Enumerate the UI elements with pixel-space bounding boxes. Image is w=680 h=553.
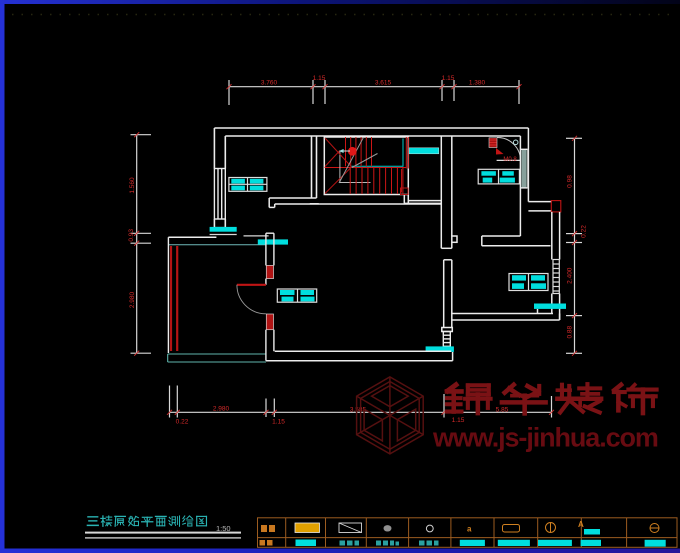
svg-text:3.615: 3.615 [375,80,392,87]
svg-text:0.22: 0.22 [176,419,189,426]
svg-text:1.15: 1.15 [313,75,326,82]
svg-text:www.js-jinhua.com: www.js-jinhua.com [432,423,658,453]
svg-text:0.22: 0.22 [581,225,588,238]
svg-text:1.380: 1.380 [469,80,486,87]
svg-text:M0.8: M0.8 [503,157,517,163]
svg-text:A: A [578,520,584,529]
svg-text:2.980: 2.980 [129,291,136,308]
svg-text:0.93: 0.93 [128,229,135,242]
svg-text:1.560: 1.560 [129,177,136,194]
svg-text:3.760: 3.760 [261,80,278,87]
svg-text:2.980: 2.980 [213,405,230,412]
svg-text:5.85: 5.85 [496,407,509,414]
svg-text:0.88: 0.88 [567,325,574,338]
svg-text:1.15: 1.15 [442,75,455,82]
svg-text:a: a [467,525,472,534]
svg-text:1.15: 1.15 [272,419,285,426]
svg-text:0.98: 0.98 [567,175,574,188]
svg-text:2.400: 2.400 [567,267,574,284]
